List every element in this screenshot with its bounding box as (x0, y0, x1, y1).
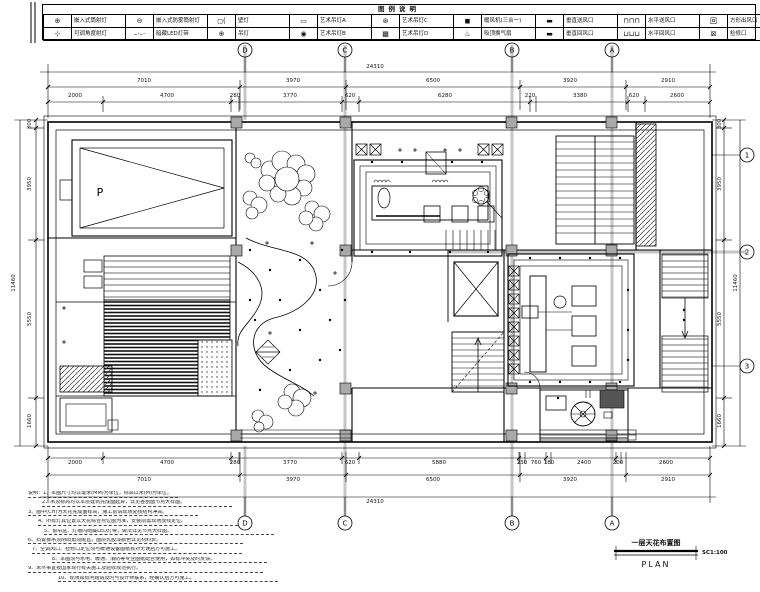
svg-text:C: C (343, 520, 348, 528)
drawing-title-en: PLAN (642, 560, 671, 569)
ceiling-exhaust-fan-icon: ♨ (454, 28, 482, 41)
dim-value: 1660 (27, 414, 33, 428)
dim-value: 2000 (68, 93, 82, 99)
legend-label: 暗藏LED灯带 (154, 28, 208, 41)
title-block: 一层天花布置图 PLAN SC1:100 (600, 538, 760, 578)
dim-value: 280 (230, 93, 241, 99)
art-pendant-a-icon: ▭ (290, 15, 318, 28)
right-corridor (662, 254, 708, 392)
dim-value: 300 (27, 119, 33, 130)
dim-value: 1660 (717, 414, 723, 428)
recessed-fog-downlight-icon: ⊖ (126, 15, 154, 28)
dim-value: 620 (345, 460, 356, 466)
stair-top-right (556, 124, 656, 246)
dim-value: 180 (544, 460, 555, 466)
legend-row: ⊹ 可调角度射灯 –·–· 暗藏LED灯带 ⊕ 吊灯 ◉ 艺术吊灯B ▩ 艺术吊… (44, 28, 760, 41)
legend-label: 吸顶换气扇 (482, 28, 536, 41)
recessed-downlight-icon: ⊕ (44, 15, 72, 28)
dim-value: 7010 (137, 78, 151, 84)
dim-value: 5550 (27, 312, 33, 326)
svg-text:C: C (343, 47, 348, 55)
drawing-sheet: { "legend": { "title": "图例说明", "rows": [… (0, 0, 760, 592)
legend-label: 水平送风口 (646, 15, 700, 28)
legend-label: 垂直回风口 (564, 28, 618, 41)
dim-value: 3950 (717, 177, 723, 191)
dim-value: 2000 (68, 460, 82, 466)
legend-label: 检修口 (728, 28, 760, 41)
dim-value: 3970 (286, 477, 300, 483)
note-line: 3、图中(CH)为天花完成面标高，施工前请现场复核结构净高。 (28, 510, 278, 519)
heater-unit-icon: ◼ (454, 15, 482, 28)
right-room-ceiling (508, 254, 634, 386)
svg-text:2: 2 (745, 249, 749, 257)
dim-value: 3380 (573, 93, 587, 99)
note-line: 9、未尽事宜按国家现行有关施工及验收规范执行。 (28, 566, 278, 575)
elevator (454, 262, 498, 316)
dim-value: 3770 (283, 93, 297, 99)
dim-value: 3970 (286, 78, 300, 84)
dim-value: 620 (345, 93, 356, 99)
legend-table: 图例说明 ⊕ 嵌入式筒射灯 ⊖ 嵌入式防雾筒射灯 ◻( 壁灯 ▭ 艺术吊灯A ⊛… (42, 4, 756, 40)
svg-text:A: A (610, 520, 615, 528)
legend-label: 可调角度射灯 (72, 28, 126, 41)
legend-label: 艺术吊灯D (400, 28, 454, 41)
legend-label: 艺术吊灯B (318, 28, 372, 41)
sheet-border (31, 2, 35, 43)
legend-label: 水平回风口 (646, 28, 700, 41)
dim-value: 11460 (11, 274, 17, 292)
vertical-return-vent-icon: ▬ (536, 28, 564, 41)
svg-text:1: 1 (745, 152, 749, 160)
dim-value: 2600 (670, 93, 684, 99)
legend-label: 暖风机(三合一) (482, 15, 536, 28)
dim-value: 3950 (27, 177, 33, 191)
led-strip-icon: –·–· (126, 28, 154, 41)
dim-value: 220 (525, 93, 536, 99)
note-line: 7、空调风口、检修口定位须与暖通设备图纸核对无误后方可施工。 (32, 547, 278, 556)
dim-value: 24310 (366, 64, 384, 70)
dim-value: 4700 (160, 460, 174, 466)
note-line: 10、现场如有问题请及时与设计师联系，经确认后方可施工。 (58, 576, 278, 585)
svg-text:B: B (510, 47, 515, 55)
dim-value: 11460 (733, 274, 739, 292)
dim-value: 300 (717, 119, 723, 130)
legend-row: ⊕ 嵌入式筒射灯 ⊖ 嵌入式防雾筒射灯 ◻( 壁灯 ▭ 艺术吊灯A ⊛ 艺术吊灯… (44, 15, 760, 28)
dim-value: 6500 (426, 477, 440, 483)
legend-label: 吊灯 (236, 28, 290, 41)
dim-value: 230 (517, 460, 528, 466)
stair-top-run (446, 230, 495, 250)
courtyard-path (238, 238, 317, 396)
vertical-supply-vent-icon: ▬ (536, 15, 564, 28)
dim-value: 5550 (717, 312, 723, 326)
adjustable-spotlight-icon: ⊹ (44, 28, 72, 41)
dim-value: 620 (629, 93, 640, 99)
access-panel-icon: ⊠ (700, 28, 728, 41)
courtyard-trees (243, 151, 330, 432)
legend-label: 垂直送风口 (564, 15, 618, 28)
dim-value: 4700 (160, 93, 174, 99)
dim-value: 2600 (659, 460, 673, 466)
drawing-scale: SC1:100 (702, 550, 728, 556)
wall-lamp-icon: ◻( (208, 15, 236, 28)
note-line: 4、所有灯具位置以天花综合点位图为准，安装前需现场放线定位。 (38, 519, 278, 528)
art-pendant-c-icon: ⊛ (372, 15, 400, 28)
square-outlet-icon: 回 (700, 15, 728, 28)
note-line: 5、窗帘盒、灯槽内暗藏LED灯带，做法详见节点大样图。 (44, 529, 278, 538)
legend-title: 图例说明 (43, 5, 755, 14)
bottom-hatch-band (240, 430, 636, 440)
legend-label: 壁灯 (236, 15, 290, 28)
dim-value: 6500 (426, 78, 440, 84)
dim-value: 3770 (283, 460, 297, 466)
drawing-title: 一层天花布置图 (632, 538, 681, 548)
svg-text:B: B (510, 520, 515, 528)
legend-label: 方形出风口 (728, 15, 760, 28)
dim-value: 24310 (366, 499, 384, 505)
note-line: 2、吊顶标高均以本层建筑完成面起算，详见各剖面节点大样图。 (42, 500, 278, 509)
dining-ceiling (354, 152, 502, 256)
dim-value: 200 (613, 460, 624, 466)
dim-value: 3920 (563, 477, 577, 483)
legend-label: 嵌入式防雾筒射灯 (154, 15, 208, 28)
dim-value: 7010 (137, 477, 151, 483)
legend-label: 艺术吊灯A (318, 15, 372, 28)
vent-boxes-top (356, 144, 503, 155)
horizontal-return-vent-icon: ⊔⊔⊔ (618, 28, 646, 41)
legend-label: 艺术吊灯C (400, 15, 454, 28)
dim-value: 3920 (563, 78, 577, 84)
note-line: 说明：1、本图尺寸均以毫米(MM)为单位，标高以米(M)为单位。 (28, 491, 278, 500)
pendant-lamp-icon: ⊕ (208, 28, 236, 41)
parking-label: P (97, 186, 104, 199)
parking-room (60, 140, 232, 236)
svg-text:3: 3 (745, 363, 749, 371)
note-line: 8、本图须与水电、暖通、消防等专业图纸配合使用，如有冲突及时反馈。 (52, 557, 278, 566)
dim-value: 5880 (432, 460, 446, 466)
dim-value: 280 (230, 460, 241, 466)
general-notes: 说明：1、本图尺寸均以毫米(MM)为单位，标高以米(M)为单位。 2、吊顶标高均… (28, 491, 278, 585)
note-line: 6、石膏板吊顶阴阳角须顺直，面层乳胶漆颜色详见材料表。 (28, 538, 278, 547)
stair-main (452, 332, 504, 392)
horizontal-supply-vent-icon: ⊓⊓⊓ (618, 15, 646, 28)
ceiling-lights-dots (249, 161, 685, 399)
svg-text:D: D (242, 47, 247, 55)
dim-value: 2910 (661, 78, 675, 84)
svg-text:A: A (610, 47, 615, 55)
legend-label: 嵌入式筒射灯 (72, 15, 126, 28)
dim-value: 6280 (438, 93, 452, 99)
dim-value: 2400 (577, 460, 591, 466)
art-pendant-b-icon: ◉ (290, 28, 318, 41)
dim-value: 760 (531, 460, 542, 466)
porch (60, 366, 118, 432)
art-pendant-d-icon: ▩ (372, 28, 400, 41)
dim-value: 2910 (661, 477, 675, 483)
